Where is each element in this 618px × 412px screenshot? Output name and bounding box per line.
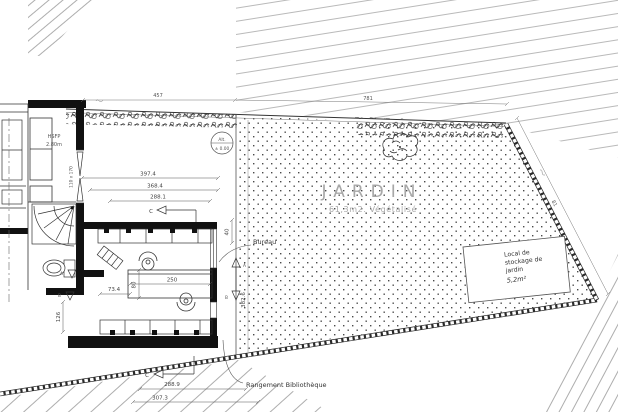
dim-desk-group xyxy=(98,268,212,300)
dim-bottom-2: 307.3 xyxy=(152,396,168,402)
office-chair-2 xyxy=(177,293,195,311)
altitude-label: Alt. xyxy=(218,137,225,143)
floor-plan-page: Local de stockage de jardin 5,2m² JARDIN… xyxy=(0,0,618,412)
dim-garden-top-value: 40 xyxy=(225,228,231,235)
window-casement-icon xyxy=(76,150,84,203)
altitude-value: ± 0.00 xyxy=(215,146,230,152)
dim-wall-opening-value: 126 xyxy=(56,311,62,322)
storage-box: Local de stockage de jardin 5,2m² xyxy=(463,236,570,302)
section-b-wall-label: B xyxy=(58,293,61,299)
cabinet xyxy=(30,186,52,202)
dim-desk-depth: 80 xyxy=(132,281,138,288)
garden-title: JARDIN xyxy=(321,182,423,202)
office-chair-1 xyxy=(139,252,157,270)
bureau-label: Bureau xyxy=(253,238,276,246)
room-hsfp-height: 2.80m xyxy=(46,142,62,148)
dim-terrace-2: 368.4 xyxy=(147,184,163,190)
side-table xyxy=(97,246,123,269)
section-c-bottom-label: C xyxy=(145,373,149,379)
section-b-mid-label: B xyxy=(225,295,228,301)
dim-garden-depth: 382.6 xyxy=(241,292,247,308)
window-size-label: 110 x 170 xyxy=(69,166,75,188)
hatch-area-top-left xyxy=(28,0,96,56)
left-adjacent-rooms xyxy=(0,104,28,208)
section-a-wall-label: A xyxy=(60,271,63,277)
shelf-top xyxy=(98,228,212,243)
dim-top-2: 781 xyxy=(363,96,373,102)
dim-bottom-1: 288.9 xyxy=(164,382,180,388)
section-c-top-label: C xyxy=(149,209,153,215)
hedge-band-left xyxy=(66,110,237,128)
section-marker-c-top xyxy=(157,206,196,222)
garden-subtitle: 61,3m2. Végétalisé xyxy=(329,204,417,214)
altitude-marker-icon: Alt. ± 0.00 xyxy=(211,132,233,154)
dim-top-1: 457 xyxy=(153,93,163,99)
dim-desk-width: 250 xyxy=(167,278,178,284)
floor-plan-drawing: Local de stockage de jardin 5,2m² JARDIN… xyxy=(0,0,618,412)
shelf-bottom xyxy=(100,320,212,335)
dim-terrace-1: 397.4 xyxy=(140,172,156,178)
room-hsfp-label: HSFP xyxy=(48,134,61,140)
dim-terrace-3: 288.1 xyxy=(150,195,166,201)
rangement-label: Rangement Bibliothèque xyxy=(246,381,327,389)
section-a-mid-label: A xyxy=(243,263,246,269)
stairs-icon xyxy=(32,204,76,246)
dim-desk-offset: 73.4 xyxy=(108,287,121,293)
dim-garden-top xyxy=(230,218,234,245)
